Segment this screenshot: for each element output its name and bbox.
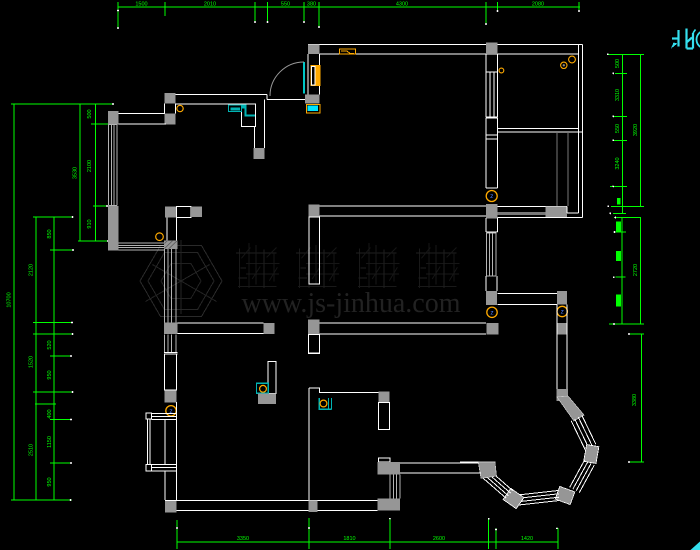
svg-text:2510: 2510: [29, 444, 35, 456]
svg-text:2720: 2720: [633, 264, 639, 276]
svg-text:4300: 4300: [396, 2, 408, 8]
svg-text:z: z: [561, 309, 564, 316]
svg-text:3240: 3240: [615, 157, 621, 169]
svg-text:10700: 10700: [7, 292, 13, 307]
svg-text:550: 550: [615, 124, 621, 133]
svg-text:520: 520: [47, 340, 53, 349]
svg-text:3380: 3380: [632, 394, 638, 406]
svg-text:z: z: [169, 408, 172, 415]
svg-text:2080: 2080: [532, 2, 544, 8]
svg-text:1420: 1420: [521, 536, 533, 542]
svg-text:www.js-jinhua.com: www.js-jinhua.com: [241, 288, 460, 319]
svg-text:1520: 1520: [29, 356, 35, 368]
svg-text:500: 500: [615, 59, 621, 68]
svg-text:380: 380: [307, 2, 316, 8]
svg-text:2600: 2600: [433, 536, 445, 542]
svg-text:950: 950: [47, 370, 53, 379]
svg-text:550: 550: [281, 2, 290, 8]
svg-text:400: 400: [47, 409, 53, 418]
svg-text:1150: 1150: [47, 436, 53, 448]
svg-text:850: 850: [47, 229, 53, 238]
svg-text:950: 950: [47, 477, 53, 486]
svg-text:z: z: [490, 193, 493, 200]
svg-text:3920: 3920: [633, 124, 639, 136]
svg-text:1810: 1810: [343, 536, 355, 542]
svg-text:z: z: [490, 310, 493, 317]
svg-text:3350: 3350: [237, 536, 249, 542]
svg-text:2100: 2100: [87, 160, 93, 172]
svg-text:2120: 2120: [29, 264, 35, 276]
svg-text:2010: 2010: [204, 2, 216, 8]
svg-text:3530: 3530: [73, 167, 79, 179]
svg-text:1500: 1500: [135, 2, 147, 8]
svg-text:500: 500: [87, 109, 93, 118]
svg-text:3310: 3310: [615, 89, 621, 101]
svg-text:910: 910: [87, 219, 93, 228]
